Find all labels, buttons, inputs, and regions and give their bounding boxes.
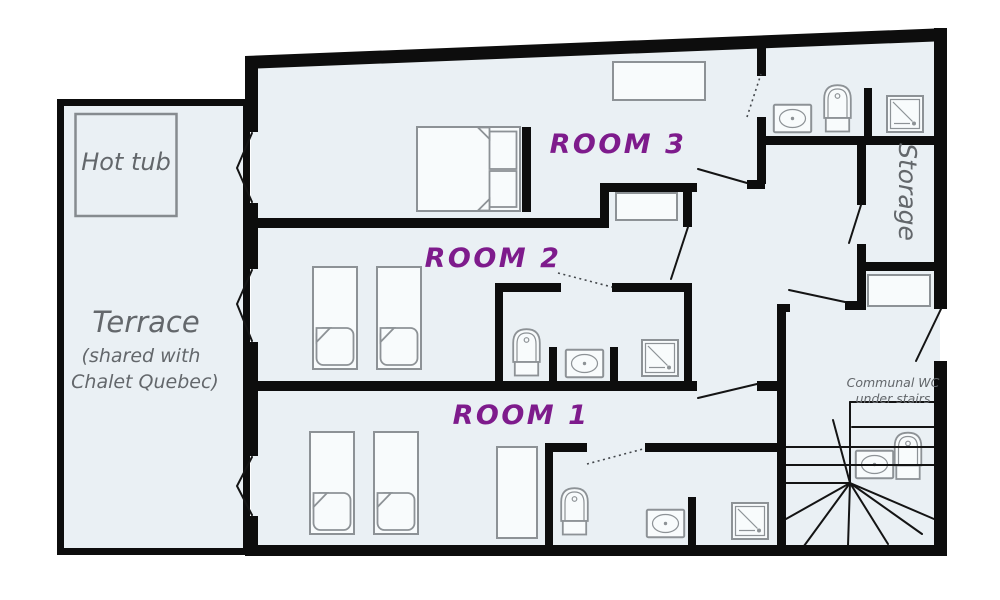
shower-icon — [732, 503, 768, 539]
floor-plan-canvas: Hot tub Terrace (shared with Chalet Queb… — [0, 0, 1000, 600]
wardrobe — [497, 447, 537, 538]
right-wall-upper — [934, 28, 947, 309]
left-wall-seg3 — [245, 342, 258, 456]
floor-plan: Hot tub Terrace (shared with Chalet Queb… — [0, 0, 1000, 600]
bottom-wall — [245, 545, 947, 556]
shower-icon — [642, 340, 678, 376]
toilet-icon — [824, 85, 851, 131]
terrace-label: Terrace — [92, 305, 199, 339]
right-wall-lower — [934, 361, 947, 556]
left-wall-seg1 — [245, 56, 258, 132]
toilet-icon — [561, 488, 588, 534]
sink-icon — [566, 350, 603, 377]
terrace-note-line1: (shared with — [82, 345, 201, 367]
room3-label: ROOM 3 — [550, 129, 687, 160]
communal-wc-label-line2: under stairs — [856, 391, 931, 406]
single-bed — [374, 432, 418, 534]
single-bed — [377, 267, 421, 369]
sink-icon — [647, 510, 684, 537]
storage-label: Storage — [893, 143, 922, 241]
single-bed — [310, 432, 354, 534]
toilet-icon — [895, 433, 922, 479]
double-bed — [417, 127, 520, 211]
toilet-icon — [513, 329, 540, 375]
left-wall-seg4 — [245, 516, 258, 556]
shower-icon — [887, 96, 923, 132]
hall-window-rect — [868, 275, 930, 306]
single-bed — [313, 267, 357, 369]
communal-wc-label-line1: Communal WC — [847, 375, 940, 390]
room1-label: ROOM 1 — [453, 400, 590, 431]
hot-tub-label: Hot tub — [81, 148, 171, 176]
sink-icon — [774, 105, 811, 132]
room3-window-rect — [616, 193, 677, 220]
room2-label: ROOM 2 — [425, 243, 562, 274]
terrace-note-line2: Chalet Quebec) — [71, 371, 219, 393]
room3-dresser — [613, 62, 705, 100]
left-wall-seg2 — [245, 203, 258, 269]
terrace: Hot tub Terrace (shared with Chalet Queb… — [61, 103, 247, 552]
